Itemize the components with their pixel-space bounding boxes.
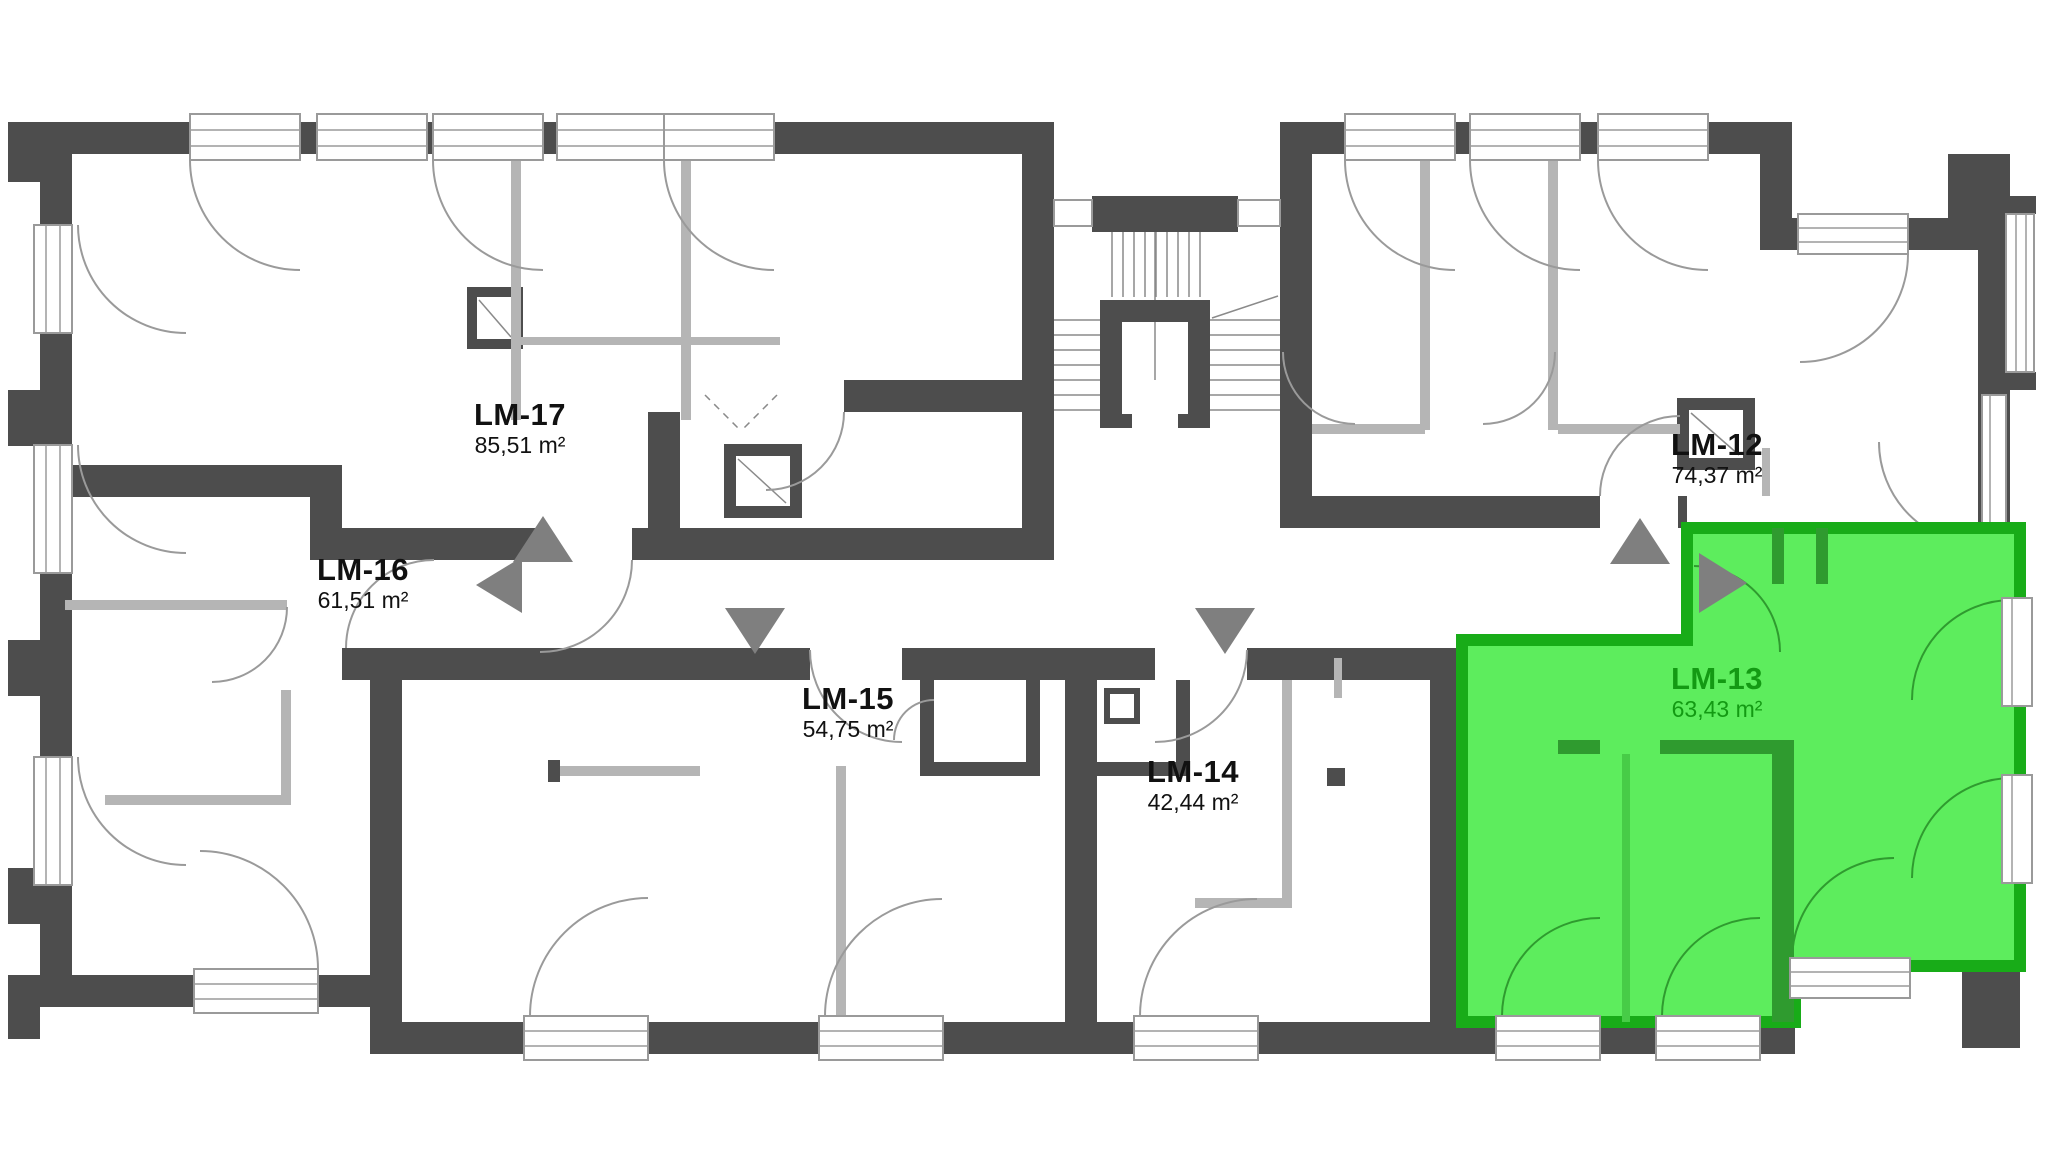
apartment-id: LM-14 bbox=[1147, 755, 1239, 789]
arrow-down-icon-lm14 bbox=[1195, 608, 1255, 654]
arrow-down-icon-lm15 bbox=[725, 608, 785, 654]
floor-plan-canvas: LM-17 85,51 m² LM-16 61,51 m² LM-15 54,7… bbox=[0, 0, 2048, 1151]
apartment-label-lm17: LM-17 85,51 m² bbox=[474, 398, 566, 460]
stairwell-window-left bbox=[1054, 200, 1092, 226]
arrow-left-icon-lm16 bbox=[476, 557, 522, 613]
apartment-label-lm16: LM-16 61,51 m² bbox=[317, 553, 409, 615]
apartment-lm13-area-shape[interactable] bbox=[1462, 528, 2020, 1022]
stairwell-window-right bbox=[1238, 200, 1280, 226]
apartment-area: 61,51 m² bbox=[317, 587, 409, 615]
apartment-label-lm14: LM-14 42,44 m² bbox=[1147, 755, 1239, 817]
apartment-area: 42,44 m² bbox=[1147, 789, 1239, 817]
arrow-up-icon-lm12 bbox=[1610, 518, 1670, 564]
apartment-label-lm13[interactable]: LM-13 63,43 m² bbox=[1671, 662, 1763, 724]
apartment-id: LM-13 bbox=[1671, 662, 1763, 696]
apartment-label-lm12: LM-12 74,37 m² bbox=[1671, 428, 1763, 490]
apartment-lm13-highlight[interactable] bbox=[1462, 528, 2032, 1060]
stairwell bbox=[1054, 196, 1280, 428]
apartment-area: 63,43 m² bbox=[1671, 696, 1763, 724]
apartment-id: LM-15 bbox=[802, 682, 894, 716]
stairwell-header-wall bbox=[1092, 196, 1238, 232]
apartment-label-lm15: LM-15 54,75 m² bbox=[802, 682, 894, 744]
apartment-area: 85,51 m² bbox=[474, 432, 566, 460]
apartment-area: 74,37 m² bbox=[1671, 462, 1763, 490]
floor-plan-svg bbox=[0, 0, 2048, 1151]
apartment-id: LM-16 bbox=[317, 553, 409, 587]
apartment-area: 54,75 m² bbox=[802, 716, 894, 744]
apartment-id: LM-17 bbox=[474, 398, 566, 432]
apartment-id: LM-12 bbox=[1671, 428, 1763, 462]
